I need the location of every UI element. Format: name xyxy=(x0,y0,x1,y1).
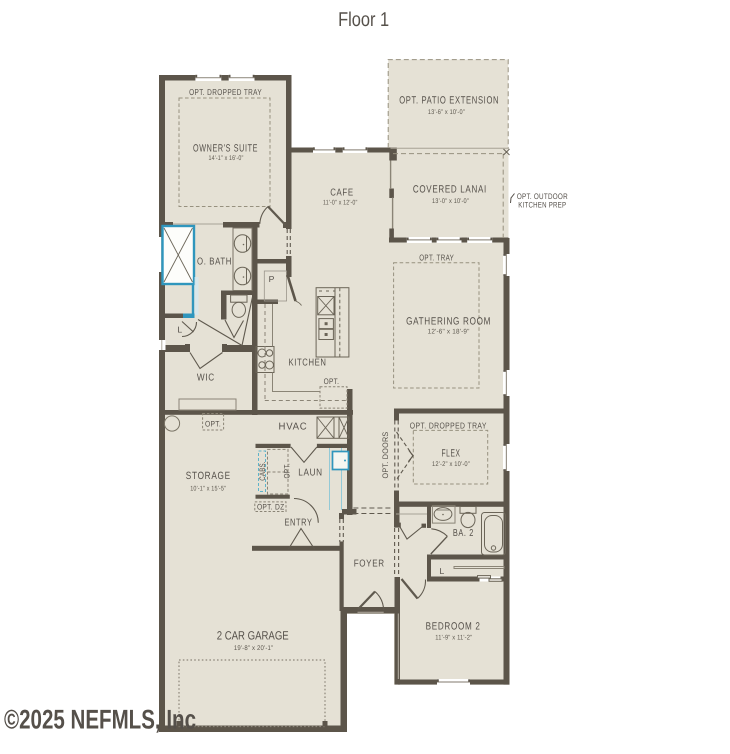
svg-text:BA. 2: BA. 2 xyxy=(453,528,474,539)
svg-text:O. BATH: O. BATH xyxy=(197,257,232,268)
svg-text:FOYER: FOYER xyxy=(354,558,385,569)
svg-text:P: P xyxy=(269,274,275,284)
svg-text:COVERED LANAI: COVERED LANAI xyxy=(413,184,487,196)
svg-text:ENTRY: ENTRY xyxy=(285,517,313,528)
svg-text:CAFE: CAFE xyxy=(330,188,354,199)
svg-text:OPT. DROPPED TRAY: OPT. DROPPED TRAY xyxy=(410,421,487,431)
svg-text:LAUN: LAUN xyxy=(298,468,323,479)
svg-text:2 CAR GARAGE: 2 CAR GARAGE xyxy=(217,628,289,642)
svg-text:Floor 1: Floor 1 xyxy=(338,9,389,31)
svg-text:OPT. DOORS: OPT. DOORS xyxy=(381,432,390,479)
svg-text:OPT.: OPT. xyxy=(324,377,340,386)
svg-text:WIC: WIC xyxy=(197,373,215,384)
svg-text:13'-6" x 10'-0": 13'-6" x 10'-0" xyxy=(428,109,465,116)
svg-text:OPT. PATIO EXTENSION: OPT. PATIO EXTENSION xyxy=(399,94,499,106)
svg-text:BEDROOM 2: BEDROOM 2 xyxy=(426,620,481,632)
svg-text:STORAGE: STORAGE xyxy=(186,470,231,482)
svg-text:12'-6" x 18'-9": 12'-6" x 18'-9" xyxy=(428,329,470,336)
svg-text:OWNER'S SUITE: OWNER'S SUITE xyxy=(193,143,258,155)
svg-text:OPT.: OPT. xyxy=(205,420,221,429)
svg-text:L: L xyxy=(177,325,182,335)
svg-text:OPT. DROPPED TRAY: OPT. DROPPED TRAY xyxy=(189,87,262,97)
svg-text:OPT. DZ: OPT. DZ xyxy=(257,502,285,511)
svg-text:13'-0" x 10'-0": 13'-0" x 10'-0" xyxy=(432,198,469,205)
svg-text:12'-2" x 10'-0": 12'-2" x 10'-0" xyxy=(432,461,470,468)
svg-text:KITCHEN: KITCHEN xyxy=(289,357,327,368)
svg-text:L: L xyxy=(440,566,445,576)
svg-text:14'-1" x 16'-0": 14'-1" x 16'-0" xyxy=(209,155,244,162)
svg-text:HVAC: HVAC xyxy=(279,422,308,433)
svg-text:KITCHEN PREP: KITCHEN PREP xyxy=(518,201,566,210)
svg-text:OPT.: OPT. xyxy=(283,463,292,479)
svg-text:11'-0" x 12'-0": 11'-0" x 12'-0" xyxy=(323,199,358,206)
svg-text:CABS.: CABS. xyxy=(258,461,267,481)
svg-text:11'-9" x 11'-2": 11'-9" x 11'-2" xyxy=(435,635,472,642)
svg-text:19'-8" x 20'-1": 19'-8" x 20'-1" xyxy=(234,645,274,652)
svg-text:FLEX: FLEX xyxy=(442,447,461,459)
svg-text:10'-1" x 15'-5": 10'-1" x 15'-5" xyxy=(190,485,226,492)
svg-text:©2025 NEFMLS, Inc: ©2025 NEFMLS, Inc xyxy=(4,705,196,735)
svg-text:OPT. TRAY: OPT. TRAY xyxy=(419,252,454,262)
svg-text:GATHERING ROOM: GATHERING ROOM xyxy=(406,316,491,328)
